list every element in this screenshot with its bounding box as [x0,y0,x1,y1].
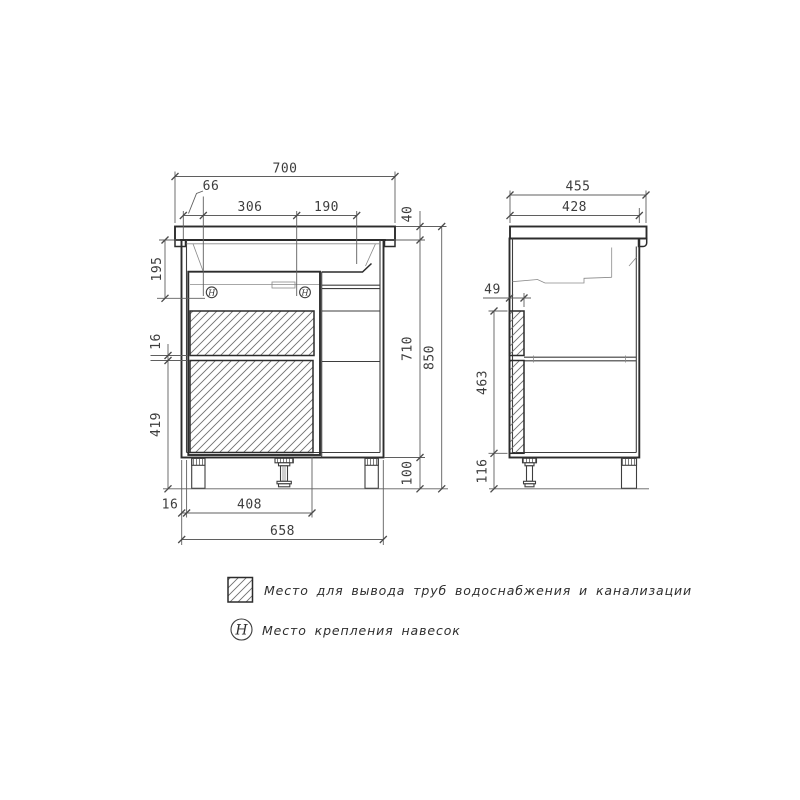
pipe-zone-legend-icon [228,578,253,603]
dim-panel-gap: 16 [149,333,164,350]
dim-wall-thickness: 16 [162,498,179,513]
drain-detail [272,282,295,288]
front-right-leg [365,458,378,488]
dim-pipe-zone-height: 463 [476,370,491,395]
dim-overall-width: 700 [273,162,298,177]
side-pipe-zone-upper [510,311,525,356]
side-view [489,227,649,489]
svg-text:H: H [234,623,248,639]
dim-leg-height: 100 [401,461,416,486]
basin-bottom-edge [322,264,372,273]
dim-lower-zone-height: 419 [149,412,164,437]
pipe-zone-upper [190,311,314,356]
pipe-zone-lower [190,361,313,453]
leader-66 [189,191,204,214]
basin-right-slope [366,244,376,266]
legend-pipe-zone-label: Место для вывода труб водоснабжения и ка… [264,583,692,598]
dim-hinge-offset: 66 [203,179,220,194]
side-front-adjustable-leg [523,458,537,487]
dim-overall-depth: 455 [566,180,591,195]
svg-text:H: H [301,288,310,297]
dim-hinge-to-basin: 190 [314,200,339,215]
dim-top-thickness: 40 [401,206,416,223]
legend-hinge-label: Место крепления навесок [262,623,461,638]
dim-pipe-zone-width: 49 [484,283,501,298]
side-countertop [510,227,647,239]
hinge-mark-icon: H [206,287,217,298]
dim-opening-width: 408 [237,498,262,513]
drawing-page: H H [0,0,800,800]
side-rear-leg [622,458,637,488]
front-countertop [175,227,395,241]
front-left-leg [192,458,205,488]
dim-hinge-spacing: 306 [238,200,263,215]
front-countertop-left-apron [175,240,186,247]
hinge-mark-icon: H [300,287,311,298]
side-basin-profile [513,277,612,283]
dim-body-depth: 428 [562,200,587,215]
dim-body-height: 710 [401,336,416,361]
front-countertop-right-apron [385,240,396,247]
hinge-legend-icon: H [231,619,252,640]
side-basin-front-step [629,258,636,267]
front-center-adjustable-leg [275,458,293,487]
svg-text:H: H [207,288,216,297]
basin-left-slope [193,244,203,272]
technical-drawing: H H [0,0,800,800]
side-cabinet-body [510,239,640,458]
dim-total-height: 850 [423,345,438,370]
dim-body-width: 658 [270,524,295,539]
dim-bottom-clearance: 116 [476,459,491,484]
legend: Место для вывода труб водоснабжения и ка… [228,578,692,641]
side-pipe-zone-lower [510,361,525,454]
dim-top-to-hinge: 195 [150,257,165,282]
